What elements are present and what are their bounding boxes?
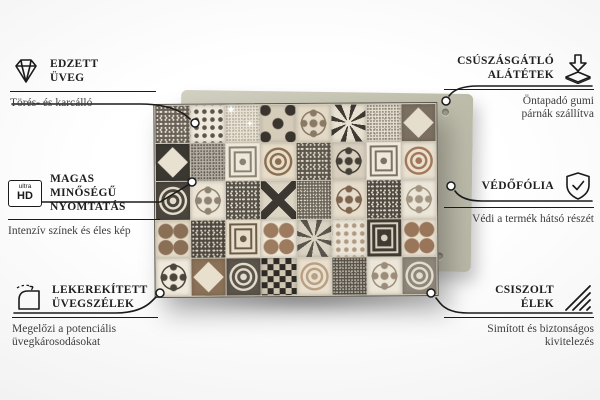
shield-check-icon <box>562 170 594 202</box>
divider <box>8 219 160 220</box>
tile <box>191 220 225 257</box>
feature-title-line: MAGAS MINŐSÉGŰ <box>50 172 160 200</box>
tile <box>297 219 331 256</box>
tile <box>402 257 436 294</box>
divider <box>444 89 594 90</box>
feature-anti-slip-pads: CSÚSZÁSGÁTLÓ ALÁTÉTEK Öntapadó gumi párn… <box>444 52 594 121</box>
ultra-hd-icon: ultra HD <box>8 180 42 207</box>
feature-subtitle-line: Öntapadó gumi <box>444 95 594 108</box>
tile <box>156 259 190 296</box>
polished-edges-icon <box>562 282 594 312</box>
diamond-icon <box>10 56 42 86</box>
tile <box>367 181 401 218</box>
tile <box>192 258 226 295</box>
feature-subtitle-line: kivitelezés <box>444 336 594 349</box>
tile <box>367 257 401 294</box>
feature-polished-edges: CSISZOLT ÉLEK Simított és biztonságos ki… <box>444 282 594 349</box>
feature-title-line: ALÁTÉTEK <box>457 68 554 82</box>
tile <box>226 220 260 257</box>
tile <box>227 258 261 295</box>
tile <box>262 220 296 257</box>
feature-title-line: ÜVEGSZÉLEK <box>52 297 148 311</box>
feature-subtitle-line: Védi a termék hátsó részét <box>444 213 594 226</box>
feature-title-line: CSISZOLT <box>495 283 554 297</box>
ultra-hd-icon-label-bottom: HD <box>17 191 33 202</box>
tile <box>366 104 400 141</box>
divider <box>10 91 156 92</box>
tile <box>366 142 400 179</box>
feature-subtitle-line: Megelőzi a potenciális <box>12 323 158 336</box>
feature-title-line: NYOMTATÁS <box>50 200 160 214</box>
tile <box>402 219 436 256</box>
tile-board: ✦ ✦ <box>153 102 438 298</box>
tile <box>331 105 365 142</box>
feature-tempered-glass: EDZETT ÜVEG Törés- és karcálló <box>10 56 156 110</box>
tile <box>296 181 330 218</box>
tile <box>226 143 260 180</box>
feature-subtitle-line: Simított és biztonságos <box>444 323 594 336</box>
divider <box>12 317 158 318</box>
tile <box>296 143 330 180</box>
tile <box>191 182 225 219</box>
tile <box>191 144 225 181</box>
feature-protective-film: VÉDŐFÓLIA Védi a termék hátsó részét <box>444 170 594 226</box>
product-infographic: ✦ ✦ EDZETT ÜVEG <box>0 0 600 400</box>
rounded-corner-icon <box>12 282 44 312</box>
tile <box>261 181 295 218</box>
divider <box>444 317 594 318</box>
feature-title-line: ÉLEK <box>495 297 554 311</box>
tile-grid <box>154 103 437 297</box>
feature-title-line: CSÚSZÁSGÁTLÓ <box>457 54 554 68</box>
tile <box>297 258 331 295</box>
tile <box>401 104 435 141</box>
tile <box>402 180 436 217</box>
tile <box>156 144 190 181</box>
anti-slip-pad-icon <box>562 52 594 84</box>
tile <box>262 258 296 295</box>
feature-title-line: ÜVEG <box>50 71 98 85</box>
feature-title-line: EDZETT <box>50 57 98 71</box>
tile <box>226 182 260 219</box>
feature-high-quality-print: ultra HD MAGAS MINŐSÉGŰ NYOMTATÁS Intenz… <box>8 172 160 238</box>
tile <box>296 105 330 142</box>
feature-rounded-edges: LEKEREKÍTETT ÜVEGSZÉLEK Megelőzi a poten… <box>12 282 158 349</box>
tile <box>331 181 365 218</box>
tile <box>332 219 366 256</box>
tile <box>156 182 190 219</box>
feature-subtitle-line: Törés- és karcálló <box>10 97 156 110</box>
divider <box>444 207 594 208</box>
tile <box>190 105 224 142</box>
tile <box>332 257 366 294</box>
tile <box>155 106 189 143</box>
tile <box>226 105 260 142</box>
tile <box>367 219 401 256</box>
tile <box>331 143 365 180</box>
tile <box>261 143 295 180</box>
feature-subtitle-line: Intenzív színek és éles kép <box>8 225 160 238</box>
tile <box>401 142 435 179</box>
feature-subtitle-line: párnák szállítva <box>444 108 594 121</box>
feature-subtitle-line: üvegkárosodásokat <box>12 336 158 349</box>
feature-title-line: LEKEREKÍTETT <box>52 283 148 297</box>
feature-title-line: VÉDŐFÓLIA <box>482 179 554 193</box>
tile <box>156 220 190 257</box>
tile <box>261 105 295 142</box>
